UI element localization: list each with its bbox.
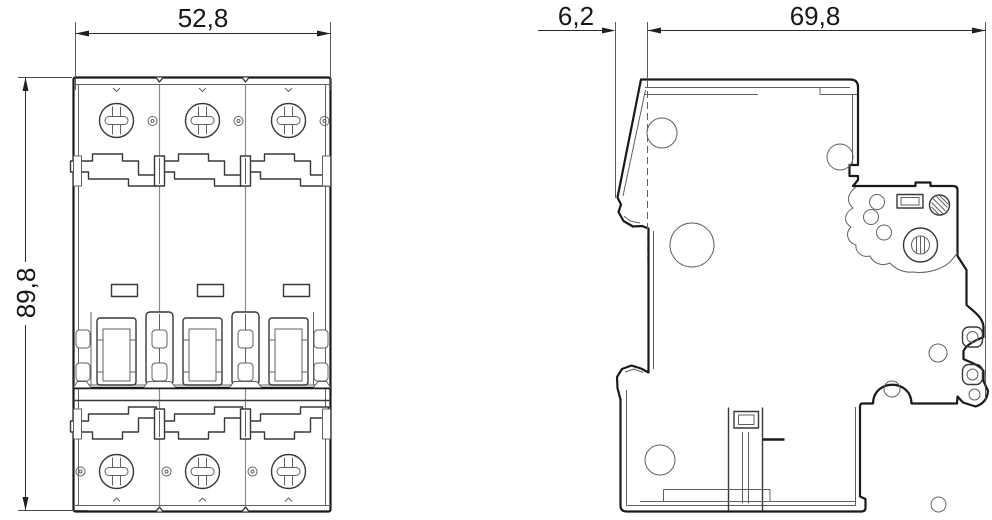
drawing-svg: 52,8 89,8 6,2 69,8 [0, 0, 992, 520]
breaker-housing-side [617, 80, 988, 512]
dimension-label-front-width: 52,8 [178, 3, 229, 33]
dimension-label-side-depth: 69,8 [790, 1, 841, 31]
dimension-label-front-height: 89,8 [11, 268, 41, 319]
front-view [71, 78, 331, 512]
technical-drawing-canvas: 52,8 89,8 6,2 69,8 [0, 0, 992, 520]
dimension-label-side-offset: 6,2 [558, 1, 594, 31]
side-view [617, 80, 988, 513]
